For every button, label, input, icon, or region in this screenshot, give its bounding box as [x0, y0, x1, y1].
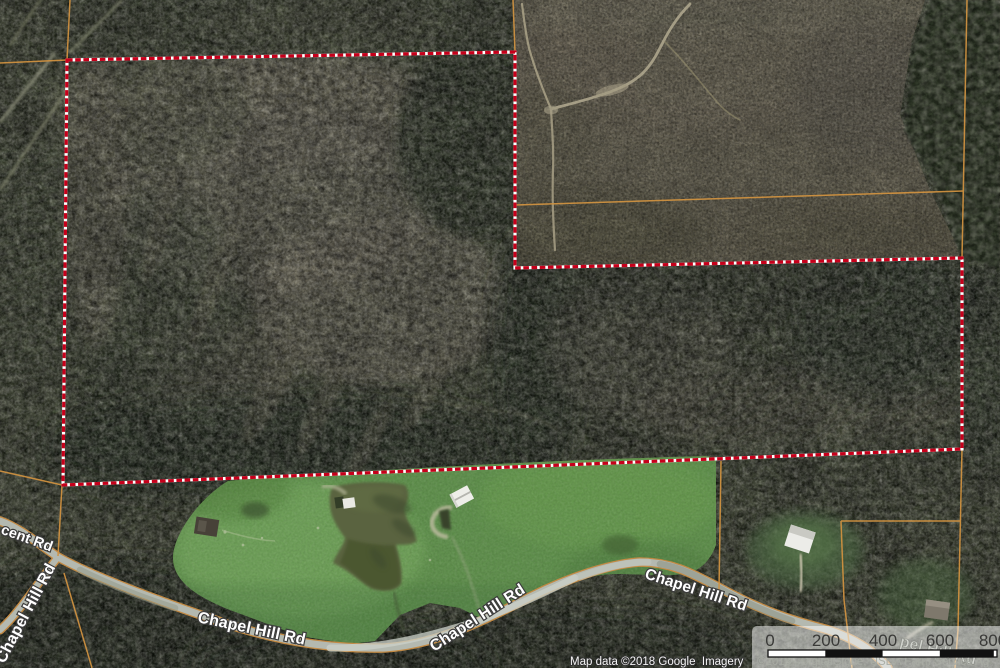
svg-text:600: 600 — [926, 631, 954, 650]
svg-text:Map data ©2018 Google Imagery: Map data ©2018 Google Imagery — [570, 656, 744, 668]
svg-text:0: 0 — [765, 631, 774, 650]
svg-text:200: 200 — [812, 631, 840, 650]
svg-text:400: 400 — [869, 631, 897, 650]
svg-text:800: 800 — [979, 631, 1000, 650]
svg-text:©2018 , DigitalGlobe, USDA Far: ©2018 , DigitalGlobe, USDA Farm Service … — [757, 656, 989, 668]
